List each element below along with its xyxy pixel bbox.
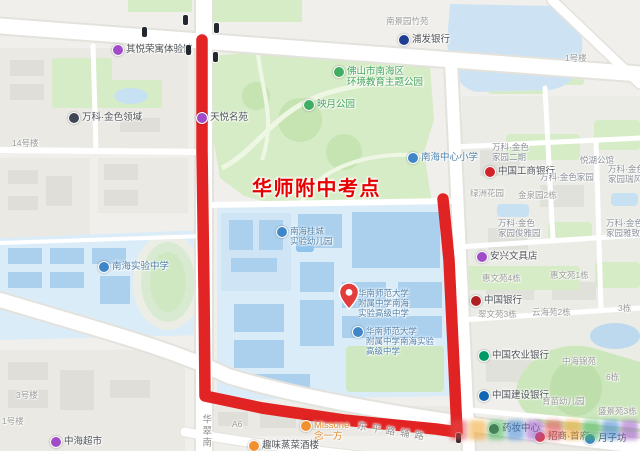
exam-site-label: 华师附中考点: [252, 172, 381, 201]
poi-label-text: 盛景苑3栋: [598, 406, 637, 416]
poi-label-text: 趣味蒸菜酒楼: [262, 440, 319, 451]
poi-label-text: 南海桂城实验幼儿园: [290, 226, 333, 246]
residence-icon: [196, 112, 208, 124]
poi-yingyue-park[interactable]: 映月公园: [303, 99, 355, 111]
residence-icon: [68, 112, 80, 124]
traffic-light-icon: [183, 15, 188, 25]
poi-bank-of-china[interactable]: 中国银行: [470, 295, 522, 307]
poi-quwei-restaurant[interactable]: 趣味蒸菜酒楼: [248, 440, 319, 451]
residence-icon: [534, 431, 546, 443]
poi-label-text: 金泉园2栋: [518, 190, 557, 200]
poi-building-1-sw[interactable]: 1号楼: [2, 416, 24, 426]
poi-spd-bank[interactable]: 浦发银行: [398, 34, 450, 46]
poi-a6[interactable]: A6: [232, 419, 242, 429]
poi-label-text: 招商·首府: [548, 431, 589, 442]
supermarket-icon: [50, 436, 62, 448]
poi-label-text: 1号楼: [2, 416, 24, 426]
bank-icon: [478, 350, 490, 362]
poi-road-dongping-auxiliary[interactable]: 东平路辅路: [356, 421, 429, 443]
poi-yunhai-2[interactable]: 云海苑2栋: [532, 307, 571, 317]
poi-vanke-golden-home-yazhi[interactable]: 万科·金色家园雅致园: [606, 218, 640, 238]
poi-label-text: 浦发银行: [412, 34, 450, 45]
poi-jinquan-2[interactable]: 金泉园2栋: [518, 190, 557, 200]
poi-zhuyuan-label[interactable]: 南景园竹苑: [386, 16, 429, 26]
poi-tianyue-garden[interactable]: 天悦名苑: [196, 112, 248, 124]
poi-env-edu-theme-park[interactable]: 佛山市南海区环境教育主题公园: [333, 66, 423, 88]
park-icon: [303, 99, 315, 111]
traffic-light-icon: [456, 433, 461, 443]
poi-yaozhuang-center[interactable]: 药妆中心: [488, 423, 540, 435]
traffic-light-icon: [142, 27, 147, 37]
destination-pin-icon[interactable]: [338, 282, 360, 310]
park-icon: [333, 66, 345, 78]
poi-vanke-golden-home[interactable]: 万科·金色家园: [540, 172, 594, 182]
poi-label-text: 翠文苑3栋: [478, 309, 517, 319]
poi-label-text: 云海苑2栋: [532, 307, 571, 317]
poi-label-text: 绿洲花园: [470, 188, 504, 198]
poi-yumiao-kindergarten[interactable]: 育苗幼儿园: [542, 396, 585, 406]
poi-label-text: 万科·金色领域: [82, 112, 142, 123]
poi-label-text: 3栋: [618, 303, 631, 313]
poi-label-text: 中国银行: [484, 295, 522, 306]
shop-icon: [476, 251, 488, 263]
poi-qiyue-showroom[interactable]: 其悦荣寓体验馆: [112, 44, 193, 56]
poi-label-text: 万科·金色家园俊雅园: [498, 218, 541, 238]
poi-hsfz-nanhai-high-2[interactable]: 华南师范大学附属中学南海实验高级中学: [352, 326, 434, 356]
poi-vanke-golden-home-2[interactable]: 万科·金色家园二期: [492, 142, 529, 162]
poi-label-text: 万科·金色家园雅致园: [606, 218, 640, 238]
poi-label-text: 惠文苑1栋: [550, 270, 589, 280]
poi-label-text: 6栋: [606, 372, 619, 382]
poi-shengjing-3[interactable]: 盛景苑3栋: [598, 406, 637, 416]
bank-icon: [470, 295, 482, 307]
poi-label-text: 东平路辅路: [356, 421, 429, 443]
poi-ccb-bank[interactable]: 中国建设银行: [478, 390, 549, 402]
poi-guicheng-exp-kindergarten[interactable]: 南海桂城实验幼儿园: [276, 226, 333, 246]
poi-label-text: 华翠南: [200, 414, 211, 449]
poi-huiwen-1[interactable]: 惠文苑1栋: [550, 270, 589, 280]
shop-icon: [300, 420, 312, 432]
poi-lvzhou-garden[interactable]: 绿洲花园: [470, 188, 504, 198]
poi-label-text: 天悦名苑: [210, 112, 248, 123]
bank-icon: [398, 34, 410, 46]
poi-nanhai-experimental-school[interactable]: 南海实验中学: [98, 261, 169, 273]
poi-dong-3[interactable]: 3栋: [618, 303, 631, 313]
school-icon: [352, 326, 364, 338]
bank-icon: [478, 390, 490, 402]
poi-label-text: A6: [232, 419, 242, 429]
poi-building-3-sw[interactable]: 3号楼: [16, 390, 38, 400]
poi-label-text: 映月公园: [317, 99, 355, 110]
traffic-light-icon: [214, 23, 219, 33]
poi-label-text: 月子坊: [598, 433, 627, 444]
poi-label-text: 万科·金色家园瑞风园: [608, 164, 640, 184]
bank-icon: [484, 166, 496, 178]
poi-abc-bank[interactable]: 中国农业银行: [478, 350, 549, 362]
poi-building-14[interactable]: 14号楼: [12, 138, 38, 148]
traffic-light-icon: [186, 45, 191, 55]
restaurant-icon: [248, 440, 260, 451]
poi-label-text: 万科·金色家园二期: [492, 142, 529, 162]
map-canvas[interactable]: 其悦荣寓体验馆万科·金色领域天悦名苑14号楼南景园竹苑浦发银行佛山市南海区环境教…: [0, 0, 640, 451]
poi-label-text: 中海超市: [64, 436, 102, 447]
poi-vanke-golden-home-junya[interactable]: 万科·金色家园俊雅园: [498, 218, 541, 238]
kindergarten-icon: [276, 226, 288, 238]
poi-label-text: 南海实验中学: [112, 261, 169, 272]
poi-label-text: Missone念一方: [314, 420, 349, 442]
poi-label-text: 1号楼: [565, 53, 587, 63]
poi-label-text: 中国建设银行: [492, 390, 549, 401]
poi-zhaoshang-label[interactable]: 招商·首府: [534, 431, 589, 443]
poi-label-text: 3号楼: [16, 390, 38, 400]
poi-building-1-ne[interactable]: 1号楼: [565, 53, 587, 63]
poi-cuiwen-3[interactable]: 翠文苑3栋: [478, 309, 517, 319]
poi-zhonghai-market[interactable]: 中海超市: [50, 436, 102, 448]
poi-vanke-golden-zone[interactable]: 万科·金色领域: [68, 112, 142, 124]
poi-zhonghai-jinyuan[interactable]: 中海锦苑: [562, 356, 596, 366]
school-icon: [98, 261, 110, 273]
poi-label-text: 南海中心小学: [421, 152, 478, 163]
poi-label-text: 佛山市南海区环境教育主题公园: [347, 66, 423, 88]
poi-dong-6[interactable]: 6栋: [606, 372, 619, 382]
shop-icon: [112, 44, 124, 56]
poi-road-huacui-south[interactable]: 华翠南: [200, 414, 211, 449]
poi-label-text: 华南师范大学附属中学南海实验高级中学: [358, 288, 409, 318]
poi-layer: 其悦荣寓体验馆万科·金色领域天悦名苑14号楼南景园竹苑浦发银行佛山市南海区环境教…: [0, 0, 640, 451]
poi-nanhai-central-primary[interactable]: 南海中心小学: [407, 152, 478, 164]
poi-label-text: 南景园竹苑: [386, 16, 429, 26]
shop-icon: [584, 433, 596, 445]
poi-vanke-golden-home-ruifeng[interactable]: 万科·金色家园瑞风园: [608, 164, 640, 184]
shop-icon: [488, 423, 500, 435]
poi-label-text: 安兴文具店: [490, 251, 538, 262]
poi-label-text: 华南师范大学附属中学南海实验高级中学: [366, 326, 434, 356]
poi-label-text: 其悦荣寓体验馆: [126, 44, 193, 55]
poi-label-text: 万科·金色家园: [540, 172, 594, 182]
poi-huiwen-4[interactable]: 惠文苑4栋: [482, 273, 521, 283]
poi-label-text: 中国农业银行: [492, 350, 549, 361]
traffic-light-icon: [213, 52, 218, 62]
poi-label-text: 14号楼: [12, 138, 38, 148]
poi-label-text: 中海锦苑: [562, 356, 596, 366]
poi-label-text: 惠文苑4栋: [482, 273, 521, 283]
school-icon: [407, 152, 419, 164]
poi-hsfz-nanhai-high[interactable]: 华南师范大学附属中学南海实验高级中学: [358, 288, 409, 318]
poi-label-text: 育苗幼儿园: [542, 396, 585, 406]
poi-yuezifang[interactable]: 月子坊: [584, 433, 627, 445]
poi-anxing-stationery[interactable]: 安兴文具店: [476, 251, 538, 263]
